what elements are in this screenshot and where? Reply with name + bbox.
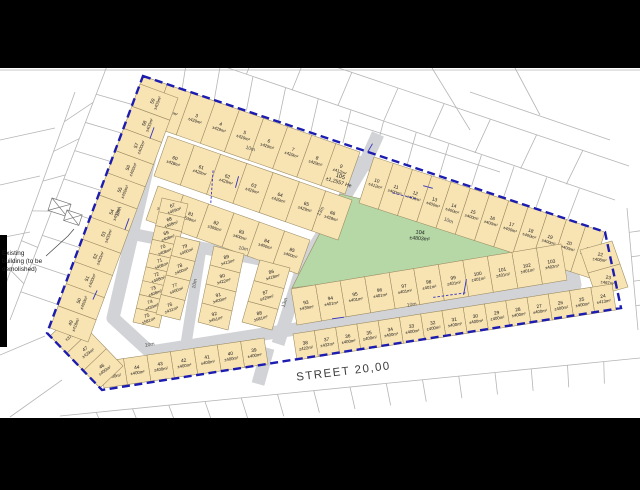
note-line1: Existing [2,250,86,258]
lot-35: 35±400m² [357,321,382,350]
top-black-bar [0,0,640,68]
lot-32: 32±400m² [421,311,446,340]
subdivision-plan-map: 1±457m²2±413m²3±429m²4±429m²5±429m²6±429… [0,0,640,490]
subdivision-plan-viewer: 1±457m²2±413m²3±429m²4±429m²5±429m²6±429… [0,0,640,490]
lot-31: 31±400m² [442,307,467,336]
lot-42: 42±400m² [170,348,197,377]
lot-24: 24±413m² [591,284,616,313]
bottom-black-bar [0,418,640,490]
lot-25: 25±400m² [569,287,594,316]
lot-39: 39±400m² [241,338,268,367]
lot-41: 41±400m² [194,345,221,374]
lot-43: 43±400m² [147,352,174,381]
lot-44: 44±400m² [123,355,150,384]
existing-building-note: Existing building (to be demolished) [2,250,86,274]
note-line3: demolished) [2,266,86,274]
lot-40: 40±400m² [217,341,244,370]
lot-28: 28±400m² [506,297,531,326]
note-line2: building (to be [2,258,86,266]
